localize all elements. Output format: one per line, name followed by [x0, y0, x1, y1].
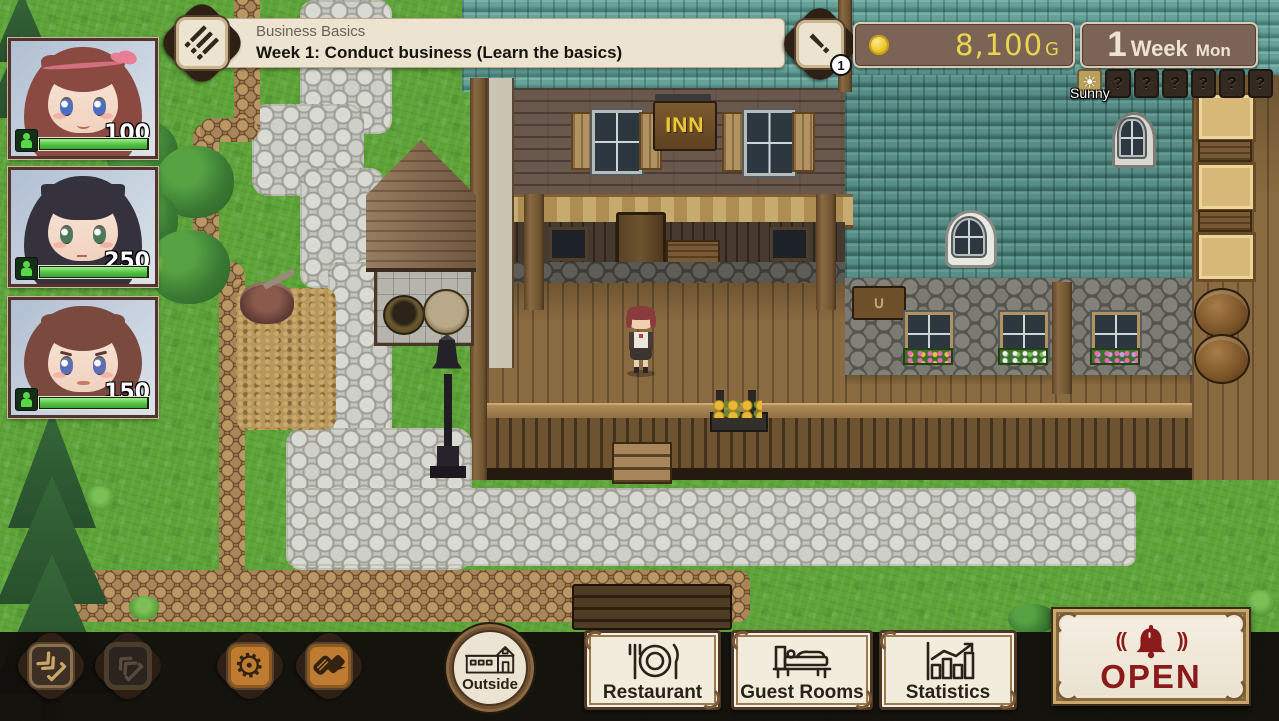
deck-shadow — [470, 468, 1192, 480]
exclamation-icon: ! — [804, 28, 836, 60]
flower-box-3 — [1090, 348, 1140, 365]
small-box — [1198, 210, 1252, 232]
crate — [1196, 92, 1256, 142]
ring-marks-left: (( — [1116, 630, 1125, 653]
crate — [1196, 232, 1256, 282]
flower-box-1 — [903, 348, 953, 365]
crate — [1196, 162, 1256, 212]
barrel — [1194, 334, 1250, 384]
open-label: OPEN — [1100, 660, 1202, 693]
outside-label: Outside — [462, 676, 518, 693]
quest-log-badge[interactable] — [170, 11, 234, 75]
status-person-icon — [15, 388, 38, 411]
barrel — [1194, 288, 1250, 338]
tab-guest-rooms[interactable]: Guest Rooms — [731, 630, 873, 710]
quest-banner[interactable]: Business Basics Week 1: Conduct business… — [205, 18, 785, 68]
small-window-left — [549, 227, 588, 261]
settings-button[interactable]: ⚙ — [222, 638, 278, 694]
coin-icon — [869, 35, 889, 55]
inn-sign-text: INN — [665, 114, 704, 138]
small-window-right — [770, 227, 809, 261]
inn-sign: INN — [653, 94, 713, 150]
currency-suffix: G — [1045, 39, 1059, 60]
notification-badge[interactable]: ! 1 — [790, 14, 850, 74]
party-member-3[interactable]: 150 — [8, 297, 158, 418]
inn-roof-right — [845, 75, 1192, 287]
status-person-icon — [15, 129, 38, 152]
ring-marks-right: )) — [1177, 630, 1186, 653]
player-sprite — [623, 306, 659, 378]
save-button[interactable] — [23, 638, 79, 694]
bush — [1008, 604, 1056, 634]
inn-window-right — [722, 110, 812, 170]
lamp-post — [428, 330, 472, 480]
bed-icon — [770, 643, 834, 681]
load-icon — [88, 626, 167, 705]
small-box — [1198, 140, 1252, 162]
porch-post-right — [1052, 282, 1072, 394]
tab-restaurant[interactable]: Restaurant — [584, 630, 721, 710]
horseshoe-plaque: ∪ — [852, 286, 906, 320]
weather-slot: ? — [1248, 69, 1273, 98]
notification-count: 1 — [830, 54, 852, 76]
tab-label: Guest Rooms — [740, 683, 864, 703]
tab-label: Statistics — [906, 683, 990, 703]
deck-flowerbox — [710, 390, 764, 430]
weather-slot: ? — [1134, 69, 1159, 98]
load-button[interactable] — [100, 638, 156, 694]
flower-box-2 — [998, 348, 1048, 365]
party-member-2[interactable]: 250 — [8, 167, 158, 287]
bell-icon — [1131, 625, 1171, 659]
porch-stairs — [612, 442, 672, 484]
hp-bar — [38, 137, 150, 151]
week-number: 1 — [1107, 27, 1126, 62]
outside-button[interactable]: Outside — [444, 622, 536, 714]
game-screen: INN ∪ — [0, 0, 1279, 721]
weather-slot: ? — [1191, 69, 1216, 98]
porch-post-mid — [816, 194, 836, 310]
restaurant-icon — [622, 642, 684, 682]
chat-icon — [289, 626, 368, 705]
porch-post-left — [524, 194, 544, 310]
party-member-1[interactable]: 100 — [8, 38, 158, 159]
week-label: Week — [1131, 36, 1188, 62]
money-amount: 8,100 — [955, 28, 1043, 62]
cliff-stairs — [572, 584, 732, 630]
open-button[interactable]: (( )) OPEN — [1051, 607, 1251, 706]
money-panel: 8,100G — [853, 22, 1075, 68]
weather-slot: ? — [1162, 69, 1187, 98]
deck-fence — [470, 418, 1192, 470]
gear-icon: ⚙ — [210, 626, 289, 705]
status-person-icon — [15, 257, 38, 280]
tab-statistics[interactable]: Statistics — [879, 630, 1017, 710]
inn-window-left — [571, 110, 659, 168]
statistics-icon — [920, 641, 976, 681]
grass-tuft — [84, 486, 116, 510]
round-window — [945, 210, 997, 268]
quest-title: Business Basics — [256, 23, 784, 42]
day-label: Mon — [1196, 41, 1231, 61]
attic-window — [1112, 112, 1156, 168]
quest-objective: Week 1: Conduct business (Learn the basi… — [256, 42, 784, 63]
tab-label: Restaurant — [603, 683, 702, 703]
path — [286, 488, 1136, 566]
weather-slot: ? — [1219, 69, 1244, 98]
grass-tuft — [128, 596, 160, 620]
save-icon — [11, 626, 90, 705]
weather-today-label: Sunny — [1070, 85, 1110, 101]
date-panel: 1 Week Mon — [1080, 22, 1258, 68]
house-icon — [464, 643, 516, 675]
hp-bar — [38, 265, 150, 279]
chat-button[interactable] — [301, 638, 357, 694]
hp-bar — [38, 396, 150, 410]
planter-column — [487, 78, 514, 368]
